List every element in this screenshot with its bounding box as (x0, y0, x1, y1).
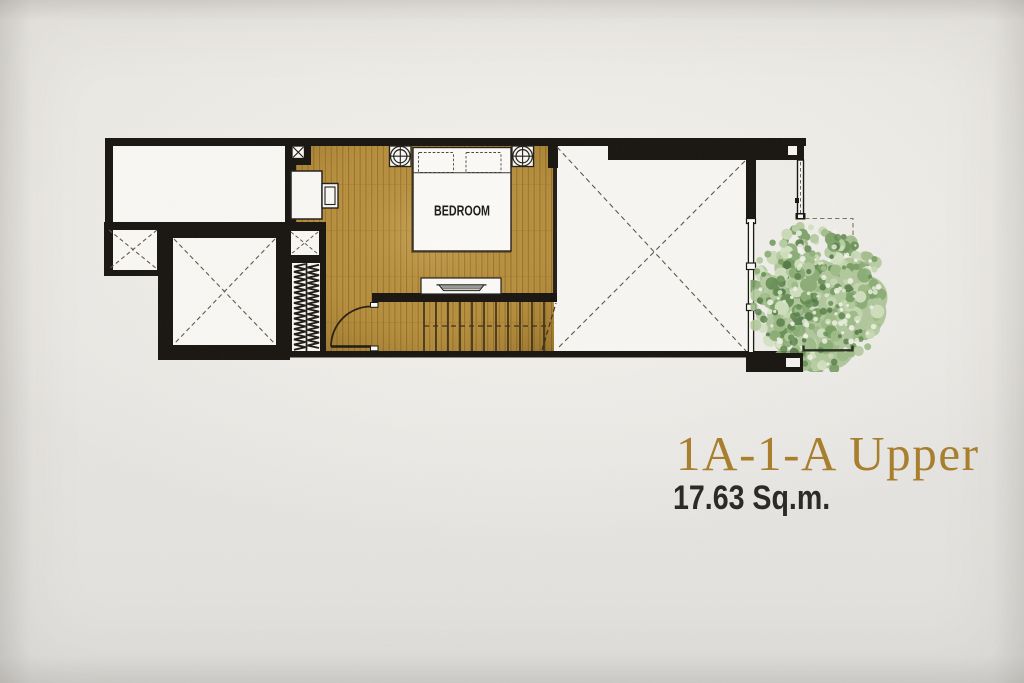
svg-text:BEDROOM: BEDROOM (434, 204, 490, 220)
